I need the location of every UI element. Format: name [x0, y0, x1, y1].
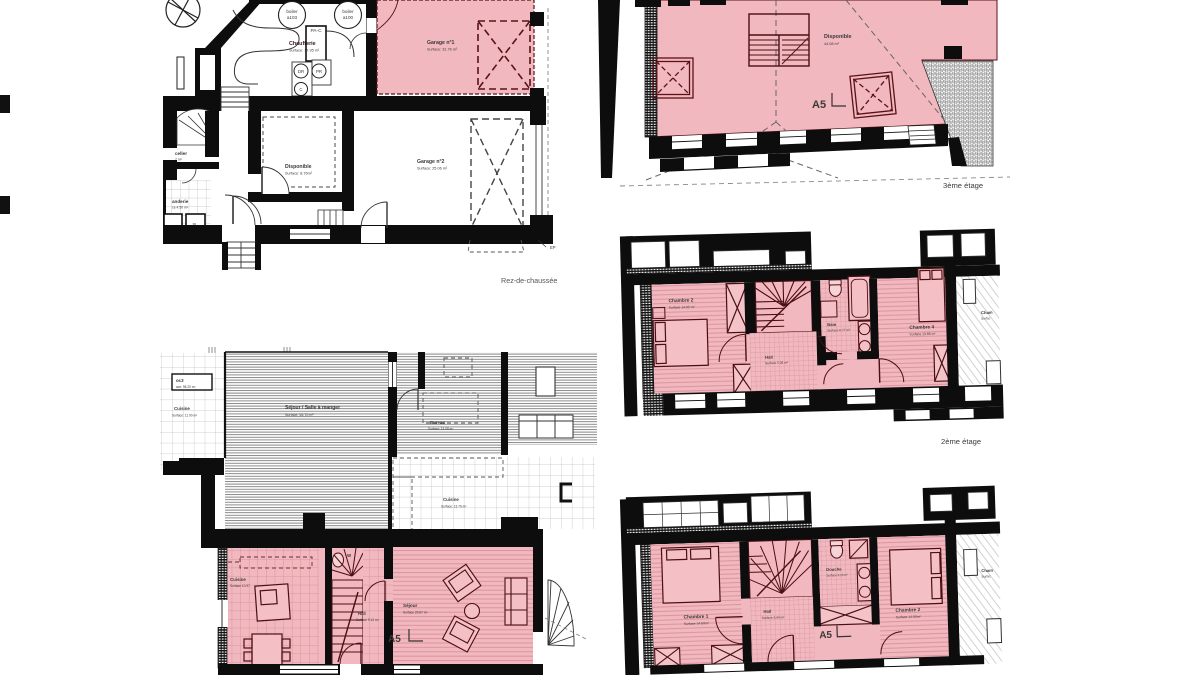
svg-text:EP: EP — [550, 245, 556, 250]
svg-text:Cham: Cham — [981, 310, 993, 315]
svg-text:Surface 6.94 m²: Surface 6.94 m² — [762, 615, 785, 620]
svg-text:Surface 14.50m²: Surface 14.50m² — [896, 615, 922, 620]
svg-text:Séjour: Séjour — [403, 603, 418, 608]
svg-text:Garage n°1: Garage n°1 — [427, 40, 455, 46]
svg-text:Disponible: Disponible — [285, 164, 312, 170]
svg-text:Surface 10.97: Surface 10.97 — [230, 584, 250, 588]
svg-text:a103: a103 — [287, 15, 298, 20]
svg-text:Surface 29.87 m²: Surface 29.87 m² — [403, 611, 427, 615]
svg-text:Bain: Bain — [827, 322, 837, 327]
svg-text:Surface: 8.76m²: Surface: 8.76m² — [285, 172, 313, 176]
svg-text:Chambre 2: Chambre 2 — [668, 298, 693, 305]
svg-text:Surface: 14.08 m²: Surface: 14.08 m² — [428, 427, 453, 431]
svg-text:Surface 6.77 m²: Surface 6.77 m² — [827, 328, 850, 333]
svg-text:Surfac: Surfac — [981, 316, 991, 320]
svg-text:Surface: 17.95 m²: Surface: 17.95 m² — [289, 49, 320, 53]
svg-text:44.08 m²: 44.08 m² — [824, 42, 840, 46]
svg-text:ce 4.50 m²: ce 4.50 m² — [172, 206, 189, 210]
svg-text:Cuisine: Cuisine — [174, 406, 190, 411]
svg-text:Surface: 25.06 m²: Surface: 25.06 m² — [417, 167, 448, 171]
svg-text:3ème étage: 3ème étage — [943, 181, 983, 190]
svg-text:Surface 14.05 m²: Surface 14.05 m² — [669, 305, 696, 310]
svg-text:Disponible: Disponible — [824, 34, 852, 40]
svg-text:C: C — [299, 87, 302, 92]
svg-text:boiler: boiler — [342, 9, 354, 14]
svg-text:Cuisine: Cuisine — [230, 577, 246, 582]
svg-text:Bureau: Bureau — [430, 420, 445, 425]
svg-text:A5: A5 — [388, 634, 401, 645]
svg-text:Douche: Douche — [826, 567, 842, 573]
svg-text:Rez-de-chaussée: Rez-de-chaussée — [501, 276, 557, 285]
svg-text:Surface 9.14 m²: Surface 9.14 m² — [356, 618, 379, 622]
svg-text:anderie: anderie — [172, 199, 189, 204]
svg-text:a100: a100 — [343, 15, 354, 20]
svg-text:Surface: 55.70 m²: Surface: 55.70 m² — [285, 413, 314, 417]
svg-text:Chambre 2: Chambre 2 — [895, 607, 920, 614]
svg-text:Surface 3.10 m²: Surface 3.10 m² — [826, 573, 847, 578]
svg-text:Surface 13.86 m²: Surface 13.86 m² — [909, 332, 936, 337]
svg-text:Surface 14.69m²: Surface 14.69m² — [684, 621, 710, 626]
svg-text:A5: A5 — [812, 99, 826, 111]
svg-text:Hall: Hall — [763, 609, 771, 614]
svg-text:Surface: 11.00 m²: Surface: 11.00 m² — [172, 414, 197, 418]
svg-text:Surface 5.28 m²: Surface 5.28 m² — [765, 361, 788, 366]
svg-text:Hall: Hall — [765, 355, 773, 360]
svg-text:Cham: Cham — [981, 568, 993, 573]
svg-text:Chambre 1: Chambre 1 — [684, 614, 709, 621]
svg-text:DR: DR — [298, 69, 304, 74]
svg-text:celler: celler — [175, 151, 187, 156]
svg-text:2ème étage: 2ème étage — [941, 437, 981, 446]
svg-text:Surface: 31.76 m²: Surface: 31.76 m² — [427, 48, 458, 52]
svg-text:Garage n°2: Garage n°2 — [417, 159, 445, 165]
svg-text:PA-C: PA-C — [310, 28, 322, 34]
svg-text:Cuisine: Cuisine — [443, 497, 459, 502]
svg-text:A5: A5 — [819, 630, 833, 641]
svg-text:Chambre 4: Chambre 4 — [909, 324, 934, 331]
svg-text:7 m²: 7 m² — [175, 158, 183, 162]
svg-text:Chaufferie: Chaufferie — [289, 41, 316, 47]
svg-text:Séjour / Salle à manger: Séjour / Salle à manger — [285, 405, 340, 411]
svg-text:Surfac: Surfac — [981, 574, 991, 578]
svg-text:Hall: Hall — [358, 611, 366, 616]
svg-text:oc3: oc3 — [176, 378, 184, 383]
svg-text:Surface: 13.76 m²: Surface: 13.76 m² — [441, 505, 466, 509]
svg-text:ace: 98.20 m²: ace: 98.20 m² — [176, 385, 196, 389]
svg-text:boiler: boiler — [286, 9, 298, 14]
svg-text:PR: PR — [316, 69, 322, 74]
